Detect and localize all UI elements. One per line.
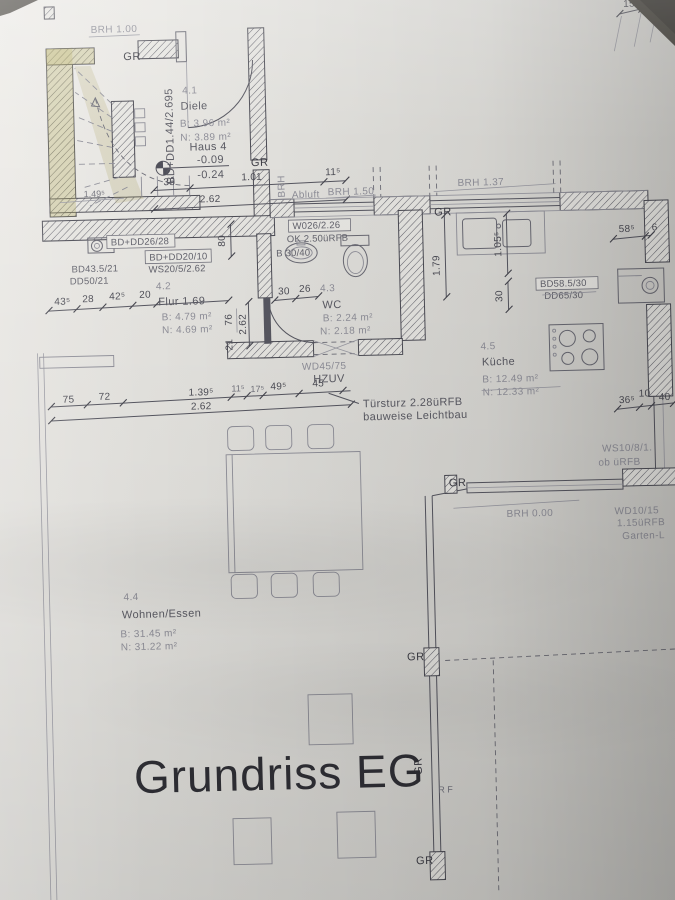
label-ws-20-5: WS20/5/2.62: [148, 263, 205, 275]
dim-2-62-top: 2.62: [200, 194, 221, 206]
label-w-026: W026/2.26: [292, 220, 340, 232]
window-abluft-icon: [294, 202, 374, 212]
dim-17-5: 17⁵: [250, 384, 264, 394]
dim-43-5: 43⁵: [54, 297, 70, 308]
note-tuersturz-2: bauweise Leichtbau: [363, 409, 468, 424]
dim-2-62-wc: 2.62: [238, 314, 250, 335]
room-name: Küche: [482, 356, 515, 369]
wc-door-swing: [263, 297, 315, 344]
dim-26: 26: [299, 284, 311, 295]
room-wohnen-essen: 4.4 Wohnen/Essen B: 31.45 m² N: 31.22 m²: [119, 590, 202, 653]
room-number: 4.2: [156, 281, 171, 292]
cooktop-icon: [549, 324, 604, 371]
label-brh-side: BRH: [276, 175, 288, 198]
room-number: 4.5: [480, 341, 495, 352]
label-brh-000: BRH 0.00: [506, 508, 553, 520]
dim-1-49-5: 1.49⁵: [84, 189, 106, 200]
room-area-n: N: 2.18 m²: [320, 325, 371, 337]
room-diele: 4.1 Diele B: 3.96 m² N: 3.89 m²: [179, 85, 231, 144]
label-ob-uerfb: ob üRFB: [598, 457, 641, 469]
room-name: Wohnen/Essen: [122, 607, 201, 621]
dim-42-5: 42⁵: [109, 291, 125, 302]
dim-1-05-5: 1.05⁵: [493, 231, 505, 256]
dim-20: 20: [139, 290, 151, 301]
photo-of-floorplan: 35 1.01 11⁵ 2.62 1.49⁵ 43⁵ 28 42⁵ 20: [0, 0, 675, 900]
room-number: 4.1: [182, 85, 197, 96]
dim-1-01: 1.01: [241, 172, 262, 184]
dim-10: 10: [639, 388, 651, 399]
dim-11-5-b: 11⁵: [231, 383, 245, 393]
room-area-b: B: 2.24 m²: [323, 312, 374, 324]
east-labels: WS10/8/1. ob üRFB WD10/15 1.15üRFB Garte…: [452, 442, 666, 546]
dim-30: 30: [278, 286, 290, 297]
tuersturz-note: Türsturz 2.28üRFB bauweise Leichtbau: [329, 390, 468, 424]
dim-11-5: 11⁵: [325, 167, 341, 178]
dining-table: [226, 452, 363, 573]
shaft-labels: WD45/75 HZUV: [302, 361, 347, 386]
room-name: WC: [322, 299, 341, 311]
photo-corner-top-right-inner: [640, 0, 675, 34]
roof-overhang-dashed: [445, 649, 675, 661]
room-area-n: N: 31.22 m²: [121, 641, 178, 653]
page-title: Grundriss EG: [133, 744, 425, 803]
room-number: 4.3: [320, 283, 335, 294]
label-bd-dd-144: BD+DD1.44/2.695: [163, 88, 177, 184]
wc-kitchen-divider-wall: [398, 210, 425, 341]
gr-marker: GR: [449, 477, 467, 489]
rf-letters: R F: [438, 784, 453, 794]
terrace-edge-dashed: [493, 660, 499, 894]
room-area-b: B: 3.96 m²: [180, 118, 231, 130]
label-b-30-40: B 30/40: [276, 248, 310, 260]
dim-58-5: 58⁵: [619, 224, 635, 235]
dim-36-5: 36⁵: [619, 395, 635, 406]
room-name: Flur 1.69: [158, 295, 205, 308]
gr-marker: GR: [123, 51, 141, 63]
floorplan-drawing: 35 1.01 11⁵ 2.62 1.49⁵ 43⁵ 28 42⁵ 20: [0, 0, 675, 900]
dim-49-5: 49⁵: [270, 381, 286, 392]
dim-76: 76: [224, 314, 235, 326]
dim-1-79: 1.79: [431, 255, 443, 276]
level-house-label: Haus 4: [189, 141, 227, 154]
south-interior-wall: [227, 338, 402, 358]
level-lower: -0.24: [197, 169, 224, 182]
room-area-n: N: 4.69 m²: [162, 324, 213, 336]
label-bd-dd-26-28: BD+DD26/28: [111, 236, 170, 248]
label-dd-50: DD50/21: [70, 276, 109, 288]
window-label-brh100: BRH 1.00: [89, 24, 140, 37]
label-1-15-uerfb: 1.15üRFB: [617, 517, 665, 529]
gr-marker: GR: [251, 157, 269, 169]
dim-30-kitchen: 30: [494, 290, 505, 302]
photo-corner-top-left: [0, 0, 38, 16]
label-bd-43: BD43.5/21: [71, 263, 118, 275]
dim-28: 28: [82, 294, 94, 305]
dim-6: 6: [652, 222, 658, 233]
window-sill-icon: [40, 356, 114, 369]
label-dd-65: DD65/30: [544, 290, 583, 302]
dim-72: 72: [99, 392, 111, 403]
dim-kitchen: 58⁵ 6 1.05⁵ 1.79 30 36⁵ 10 40: [430, 206, 675, 417]
dim-75: 75: [63, 394, 75, 405]
label-ok-250: OK 2.50üRFB: [287, 233, 349, 245]
note-tuersturz-1: Türsturz 2.28üRFB: [363, 396, 463, 410]
room-name: Diele: [180, 100, 207, 113]
room-kueche: 4.5 Küche B: 12.49 m² N: 12.33 m²: [480, 340, 560, 399]
dim-2-62-bottom: 2.62: [191, 401, 212, 413]
label-garten: Garten-L: [622, 530, 665, 542]
room-number: 4.4: [123, 592, 138, 603]
level-upper: -0.09: [197, 154, 224, 167]
gr-marker: GR: [416, 855, 434, 867]
room-area-b: B: 4.79 m²: [162, 311, 213, 323]
label-bd-58: BD58.5/30: [540, 278, 587, 290]
label-ws-10-8: WS10/8/1.: [602, 442, 653, 454]
room-area-b: B: 31.45 m²: [120, 628, 177, 640]
label-abluft: Abluft: [292, 189, 320, 201]
dim-80: 80: [217, 235, 228, 247]
dim-21: 21: [224, 339, 235, 351]
living-window-wall-icon: [420, 475, 467, 880]
label-brh-100: BRH 1.00: [91, 24, 138, 36]
label-wd-45-75: WD45/75: [302, 361, 347, 373]
west-living-wall: [38, 352, 127, 900]
dim-40: 40: [659, 392, 671, 403]
gr-marker: GR: [407, 651, 425, 663]
room-area-b: B: 12.49 m²: [482, 373, 539, 385]
gr-marker: GR: [434, 206, 452, 218]
room-flur: 4.2 Flur 1.69 B: 4.79 m² N: 4.69 m²: [156, 280, 213, 336]
room-wc: 4.3 WC B: 2.24 m² N: 2.18 m²: [319, 282, 374, 337]
label-hzuv: HZUV: [313, 373, 345, 386]
fridge-appliance-icon: [618, 268, 665, 303]
label-bd-dd-20-10: BD+DD20/10: [149, 251, 208, 263]
label-wd-10-15: WD10/15: [614, 505, 659, 517]
dim-1-39-5: 1.39⁵: [188, 387, 213, 399]
dim-row-bottom: 75 72 1.39⁵ 11⁵ 17⁵ 49⁵ 45 2.62: [47, 378, 355, 424]
